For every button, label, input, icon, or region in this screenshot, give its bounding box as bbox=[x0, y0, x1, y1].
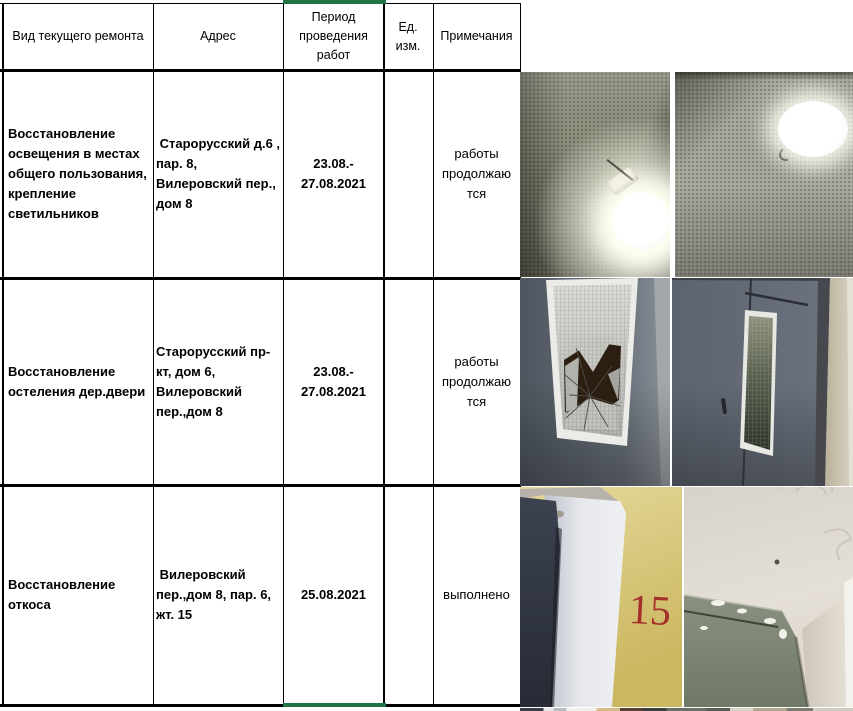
cell-address-row1[interactable]: Старорусский д.6 , пар. 8, Вилеровский п… bbox=[156, 71, 281, 277]
door-graphic bbox=[672, 278, 853, 486]
selection-border-top bbox=[283, 0, 386, 4]
cell-unit-row3[interactable] bbox=[384, 486, 432, 704]
lamp-globe bbox=[612, 192, 670, 250]
cell-type-row2[interactable]: Восстановление остеления дер.двери bbox=[8, 279, 151, 484]
cell-note-row2[interactable]: работы продолжаю тся bbox=[434, 279, 519, 484]
table-bottom-border bbox=[0, 704, 521, 707]
cell-type-row3[interactable]: Восстановление откоса bbox=[8, 486, 151, 704]
cell-type-row1[interactable]: Восстановление освещения в местах общего… bbox=[8, 71, 151, 277]
door-corner-15-photo[interactable]: 15 bbox=[520, 487, 682, 707]
header-cell-notes[interactable]: Примечания bbox=[434, 4, 519, 69]
ceiling-corner-photo[interactable] bbox=[684, 487, 853, 707]
header-cell-period[interactable]: Период проведения работ bbox=[284, 4, 383, 69]
broken-door-glass-graphic bbox=[520, 278, 670, 486]
cell-period-row1[interactable]: 23.08.- 27.08.2021 bbox=[284, 71, 383, 277]
broken-door-glass-photo[interactable] bbox=[520, 278, 670, 486]
cell-period-row3[interactable]: 25.08.2021 bbox=[284, 486, 383, 704]
corner-15-graphic: 15 bbox=[520, 487, 682, 707]
ceiling-corner-graphic bbox=[684, 487, 853, 707]
cell-note-row3[interactable]: выполнено bbox=[434, 486, 519, 704]
door-with-glass-photo[interactable] bbox=[672, 278, 853, 486]
cell-address-row3[interactable]: Вилеровский пер.,дом 8, пар. 6, жт. 15 bbox=[156, 486, 281, 704]
spreadsheet-canvas: Вид текущего ремонта Адрес Период провед… bbox=[0, 0, 853, 711]
cell-note-row1[interactable]: работы продолжаю тся bbox=[434, 71, 519, 277]
cell-unit-row1[interactable] bbox=[384, 71, 432, 277]
selection-border-bottom bbox=[283, 703, 386, 708]
wall-lamp-photo[interactable] bbox=[520, 72, 670, 277]
header-cell-unit[interactable]: Ед. изм. bbox=[384, 4, 432, 69]
cell-unit-row2[interactable] bbox=[384, 279, 432, 484]
cell-period-row2[interactable]: 23.08.- 27.08.2021 bbox=[284, 279, 383, 484]
apartment-number: 15 bbox=[628, 587, 672, 635]
lamp-globe bbox=[778, 101, 848, 157]
header-cell-type[interactable]: Вид текущего ремонта bbox=[4, 4, 152, 69]
ceiling-lamp-photo[interactable] bbox=[675, 72, 853, 277]
table-left-border bbox=[2, 3, 4, 707]
cell-address-row2[interactable]: Старорусский пр- кт, дом 6, Вилеровский … bbox=[156, 279, 281, 484]
col1-right-border bbox=[153, 3, 155, 707]
header-cell-address[interactable]: Адрес bbox=[154, 4, 282, 69]
